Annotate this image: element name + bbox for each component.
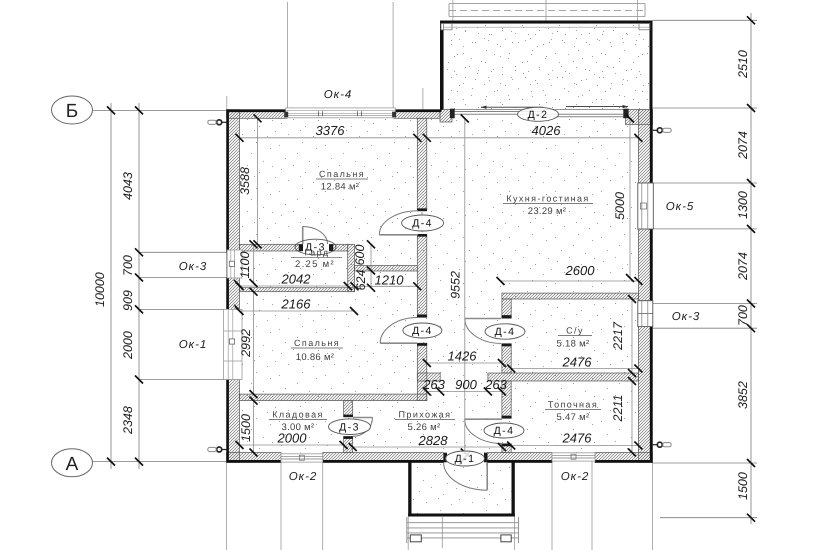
svg-text:2.25 м²: 2.25 м² [295, 259, 335, 270]
svg-text:2600: 2600 [565, 263, 596, 278]
svg-text:10000: 10000 [93, 272, 107, 307]
svg-text:23.29 м²: 23.29 м² [528, 206, 567, 217]
svg-text:2510: 2510 [736, 50, 750, 79]
svg-text:Д-4: Д-4 [494, 425, 515, 437]
svg-text:2074: 2074 [736, 131, 750, 160]
svg-text:Д-4: Д-4 [412, 325, 433, 337]
svg-text:900: 900 [455, 377, 477, 392]
svg-text:Ок-2: Ок-2 [289, 471, 318, 483]
svg-text:5000: 5000 [613, 192, 627, 220]
svg-text:4043: 4043 [121, 172, 135, 200]
svg-text:9552: 9552 [449, 271, 463, 299]
svg-text:5.47 м²: 5.47 м² [557, 412, 590, 423]
svg-text:Ок-3: Ок-3 [672, 311, 701, 323]
svg-text:3.00 м²: 3.00 м² [282, 422, 315, 433]
svg-text:1500: 1500 [239, 414, 253, 442]
svg-text:2828: 2828 [418, 433, 449, 448]
svg-text:1300: 1300 [736, 191, 750, 219]
svg-text:4026: 4026 [532, 123, 562, 138]
svg-text:Д-2: Д-2 [528, 109, 549, 121]
svg-text:263: 263 [484, 377, 507, 392]
svg-text:624: 624 [354, 270, 368, 291]
svg-text:Спальня: Спальня [319, 169, 365, 179]
svg-text:С/у: С/у [566, 326, 584, 336]
svg-text:2211: 2211 [611, 395, 625, 423]
svg-text:А: А [66, 454, 79, 475]
svg-text:2217: 2217 [611, 321, 625, 351]
svg-text:2166: 2166 [281, 297, 312, 312]
svg-text:5.18 м²: 5.18 м² [557, 339, 590, 350]
svg-text:Кладовая: Кладовая [272, 410, 324, 420]
svg-text:2992: 2992 [239, 329, 253, 358]
svg-text:Д-4: Д-4 [412, 218, 433, 230]
svg-text:12.84 м²: 12.84 м² [321, 182, 360, 193]
svg-text:Б: Б [66, 101, 78, 122]
svg-text:2476: 2476 [562, 431, 593, 446]
svg-text:Ок-5: Ок-5 [666, 201, 695, 213]
svg-text:3852: 3852 [736, 381, 750, 409]
svg-text:Ок-3: Ок-3 [179, 261, 208, 273]
svg-text:700: 700 [736, 305, 750, 326]
svg-text:3376: 3376 [316, 123, 346, 138]
svg-text:Д-3: Д-3 [339, 421, 360, 433]
svg-text:3588: 3588 [238, 167, 252, 195]
svg-text:Ок-4: Ок-4 [324, 89, 353, 101]
svg-text:2000: 2000 [121, 331, 135, 360]
svg-text:Д-4: Д-4 [495, 326, 516, 338]
svg-text:1500: 1500 [736, 472, 750, 500]
svg-text:2476: 2476 [562, 355, 593, 370]
svg-text:2042: 2042 [281, 272, 312, 287]
svg-text:Топочная: Топочная [548, 400, 598, 410]
svg-text:1210: 1210 [375, 273, 405, 288]
svg-text:Кухня-гостиная: Кухня-гостиная [506, 194, 589, 204]
svg-text:5.26 м²: 5.26 м² [408, 422, 441, 433]
svg-text:Спальня: Спальня [294, 338, 340, 348]
svg-text:2074: 2074 [736, 252, 750, 281]
svg-text:2348: 2348 [121, 406, 135, 435]
svg-text:Д-1: Д-1 [455, 453, 476, 465]
svg-text:909: 909 [121, 290, 135, 311]
svg-text:Прихожая: Прихожая [399, 410, 452, 420]
svg-text:263: 263 [422, 377, 445, 392]
svg-text:700: 700 [121, 255, 135, 276]
svg-text:Ок-2: Ок-2 [561, 471, 590, 483]
svg-text:10.86 м²: 10.86 м² [296, 352, 335, 363]
svg-text:600: 600 [353, 245, 367, 266]
svg-text:1100: 1100 [238, 252, 252, 279]
svg-text:Ок-1: Ок-1 [179, 339, 208, 351]
svg-text:Гард: Гард [304, 248, 329, 258]
svg-text:1426: 1426 [448, 349, 478, 364]
